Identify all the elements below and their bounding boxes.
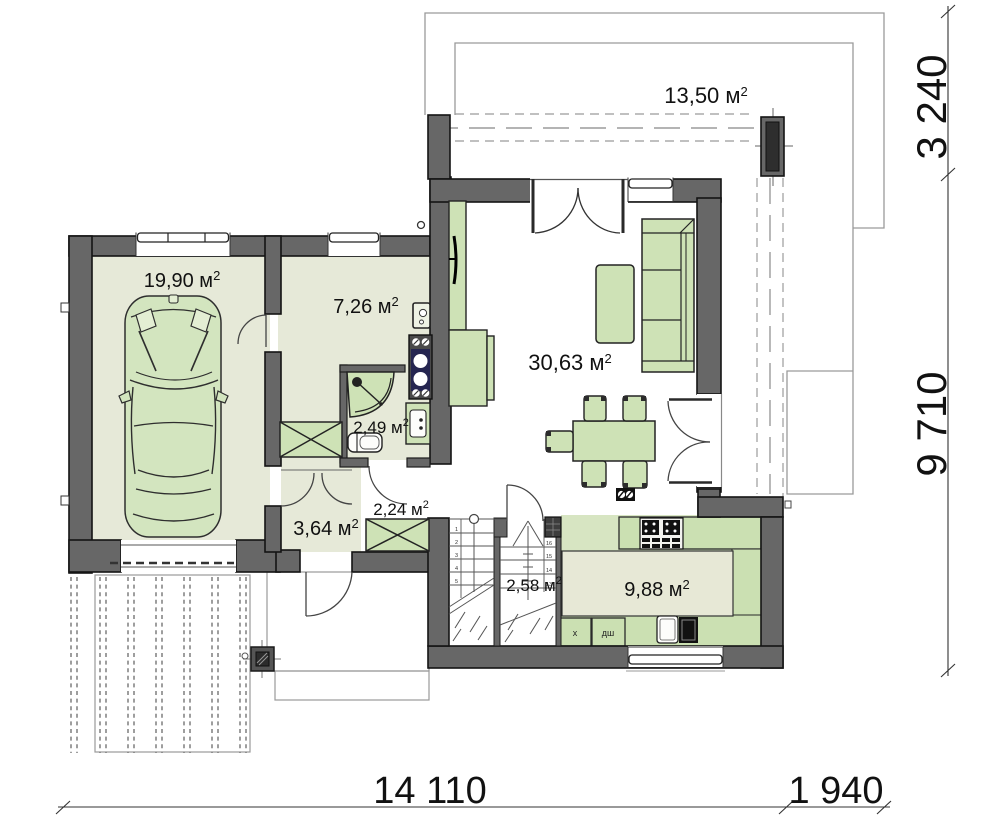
svg-text:2,58 м2: 2,58 м2 [506,575,562,595]
svg-text:2,24 м2: 2,24 м2 [373,499,429,519]
svg-text:9,88 м2: 9,88 м2 [624,577,689,601]
svg-text:дш: дш [602,628,614,638]
svg-text:30,63 м2: 30,63 м2 [528,350,612,375]
svg-text:3 240: 3 240 [908,54,955,159]
svg-text:19,90 м2: 19,90 м2 [144,268,221,292]
svg-text:x: x [573,628,578,638]
svg-text:13,50 м2: 13,50 м2 [664,83,748,108]
svg-text:2,49 м2: 2,49 м2 [353,417,409,437]
svg-text:16: 16 [546,541,552,547]
svg-text:15: 15 [546,554,552,560]
svg-text:9 710: 9 710 [908,371,955,476]
svg-text:1 940: 1 940 [788,770,883,812]
svg-text:14: 14 [546,568,552,574]
svg-text:3,64 м2: 3,64 м2 [293,516,358,540]
svg-text:14 110: 14 110 [373,770,486,812]
svg-text:7,26 м2: 7,26 м2 [333,294,398,318]
svg-text:3: 3 [455,553,458,559]
svg-text:2: 2 [455,540,458,546]
svg-text:4: 4 [455,566,458,572]
svg-text:1: 1 [455,527,458,533]
svg-text:5: 5 [455,579,458,585]
